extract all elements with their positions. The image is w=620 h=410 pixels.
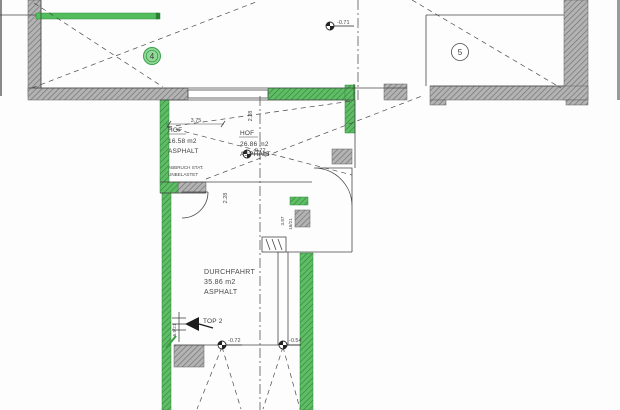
dim-top-opening: 2.28 — [248, 111, 254, 122]
wall-tab-left — [430, 100, 446, 105]
note-line-1: ABBRUCH STAT. — [168, 165, 204, 170]
wall-tab-right — [566, 100, 588, 105]
room-5-number: 5 — [458, 48, 463, 57]
elevation-marker-gate-left: -0.72 — [218, 338, 242, 349]
floor-plan-scan: 4 5 -0.71 -0.72 -0.72 — [0, 0, 620, 410]
wall-right-room5 — [564, 0, 588, 100]
wall-block-opening-right — [384, 84, 407, 100]
wall-corridor-right-green — [300, 253, 313, 410]
wall-bottom-room5 — [430, 86, 588, 100]
dim-value: 3.75 — [191, 118, 202, 124]
dim-niche: 3.87 — [280, 216, 285, 225]
wall-block-passage-right — [295, 210, 310, 227]
top-2-label: TOP 2 — [185, 317, 223, 331]
wall-block-court-right — [332, 149, 352, 164]
wall-block-green-small — [290, 197, 308, 205]
scan-edge-left — [0, 0, 2, 96]
room-surface: ASPHALT — [204, 289, 238, 296]
room-name: DURCHFAHRT — [204, 269, 256, 276]
gate-swing-left-b — [222, 347, 241, 409]
stair-note-right: 16/21 — [288, 218, 293, 230]
room-5-badge: 5 — [452, 44, 469, 61]
dimension-hof-width: 3.75 — [166, 118, 225, 127]
wall-block-gate-left — [174, 345, 204, 367]
wall-bottom-green — [268, 88, 354, 100]
wall-court-bottom — [178, 182, 206, 193]
level-value: -0.71 — [337, 20, 350, 26]
room-4-badge: 4 — [144, 48, 161, 65]
gate-swing-right-a — [263, 347, 283, 409]
floor-plan-drawing: 4 5 -0.71 -0.72 -0.72 — [0, 0, 620, 410]
highlight-bar-top — [36, 13, 158, 19]
dim-passage-opening: 2.28 — [223, 193, 229, 204]
room-area: 26.86 m2 — [240, 141, 269, 148]
room-name: HOF — [240, 130, 254, 137]
highlight-bar-tip — [156, 13, 160, 19]
abbruch-note: ABBRUCH STAT. UNBELASTET — [168, 165, 204, 177]
hof-right-label: HOF 26.86 m2 ASPHALT — [239, 130, 271, 158]
room-area: 35.86 m2 — [204, 279, 236, 286]
elevation-marker-gate-right: -0.54 — [279, 338, 302, 349]
room-surface: ASPHALT — [168, 148, 199, 155]
level-value: -0.72 — [228, 338, 241, 344]
room-name: HOF — [168, 127, 182, 134]
stair-note-left: 6.5/21 — [172, 323, 177, 336]
wall-corridor-left-green — [162, 193, 171, 410]
elevation-marker-upper-court: -0.71 — [326, 20, 354, 30]
hof-left-label: HOF 16.58 m2 ASPHALT — [167, 127, 199, 155]
wall-bottom-left — [28, 88, 188, 100]
wall-court-right-green — [345, 85, 355, 133]
outlines — [0, 0, 564, 345]
room-surface: ASPHALT — [240, 151, 271, 158]
arrow-left-icon — [185, 317, 199, 331]
room-4-number: 4 — [150, 52, 155, 61]
beam-over-opening — [188, 90, 268, 98]
door-swing-arc — [182, 192, 208, 218]
note-line-2: UNBELASTET — [168, 172, 198, 177]
unit-label: TOP 2 — [203, 318, 223, 325]
wall-court-bottom-green — [160, 182, 178, 193]
room-area: 16.58 m2 — [168, 138, 197, 145]
gate-swing-right-b — [283, 347, 300, 409]
niche-curve — [314, 168, 352, 206]
level-value: -0.54 — [289, 338, 302, 344]
durchfahrt-label: DURCHFAHRT 35.86 m2 ASPHALT — [204, 269, 256, 296]
